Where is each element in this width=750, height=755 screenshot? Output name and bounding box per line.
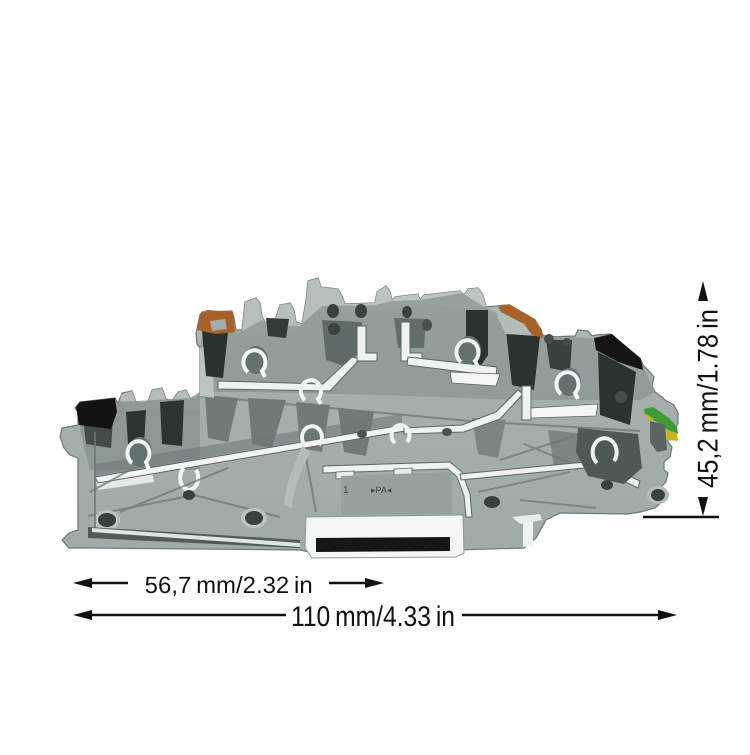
svg-text:45,2 mm/1.78 in: 45,2 mm/1.78 in	[693, 309, 725, 488]
svg-text:110 mm/4.33 in: 110 mm/4.33 in	[291, 601, 455, 633]
svg-text:▸PA◂: ▸PA◂	[371, 485, 392, 495]
svg-text:1: 1	[343, 485, 349, 496]
svg-text:56,7 mm/2.32 in: 56,7 mm/2.32 in	[145, 572, 313, 598]
